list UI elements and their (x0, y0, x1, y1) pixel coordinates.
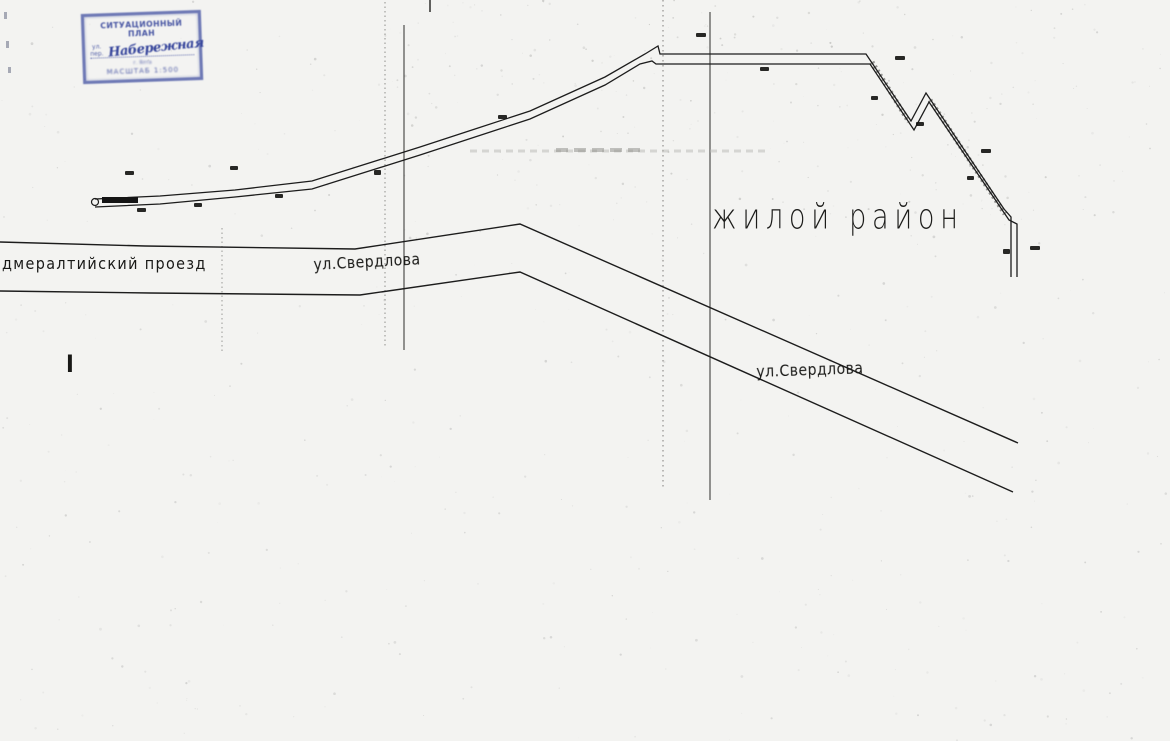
noise-dot (1006, 197, 1009, 200)
noise-dot (737, 432, 739, 434)
noise-dot (444, 508, 445, 509)
noise-dot (1096, 31, 1098, 33)
noise-dot (876, 124, 877, 125)
noise-dot (808, 177, 809, 178)
noise-dot (981, 201, 982, 202)
noise-dot (989, 97, 991, 99)
noise-dot (204, 320, 207, 323)
noise-dot (850, 181, 852, 183)
point-number-mark (1030, 246, 1040, 250)
noise-dot (87, 221, 88, 222)
noise-dot (634, 127, 635, 128)
noise-dot (425, 3, 426, 4)
noise-dot (239, 705, 240, 706)
noise-dot (670, 173, 672, 175)
noise-dot (831, 497, 832, 498)
noise-dot (829, 42, 831, 44)
noise-dot (622, 183, 624, 185)
noise-dot (1036, 118, 1037, 119)
noise-dot (707, 25, 708, 26)
noise-dot (240, 363, 242, 365)
noise-dot (31, 42, 34, 45)
noise-dot (405, 605, 407, 607)
noise-dot (30, 548, 31, 549)
point-number-mark (981, 149, 991, 153)
noise-dot (1035, 80, 1036, 81)
noise-dot (1100, 611, 1102, 613)
noise-dot (919, 601, 921, 603)
noise-dot (936, 350, 937, 351)
noise-dot (536, 184, 537, 185)
noise-dot (1053, 37, 1055, 39)
noise-dot (412, 421, 414, 423)
noise-dot (720, 38, 722, 40)
noise-dot (399, 653, 401, 655)
noise-dot (880, 510, 882, 512)
noise-dot (626, 618, 627, 619)
noise-dot (652, 612, 653, 613)
noise-dot (527, 207, 529, 209)
noise-dot (1031, 490, 1033, 492)
noise-dot (158, 408, 160, 410)
noise-dot (740, 400, 741, 401)
noise-dot (574, 83, 575, 84)
noise-dot (333, 692, 336, 695)
noise-dot (917, 244, 918, 245)
noise-dot (609, 55, 611, 57)
noise-dot (1142, 48, 1144, 50)
noise-dot (672, 17, 674, 19)
noise-dot (935, 182, 936, 183)
noise-dot (903, 82, 904, 83)
noise-dot (790, 102, 792, 104)
noise-dot (397, 86, 399, 88)
point-number-mark (374, 170, 381, 175)
street-label-proyezd: дмералтийский проезд (2, 254, 207, 273)
noise-dot (380, 454, 382, 456)
noise-dot (29, 113, 32, 116)
noise-dot (461, 296, 462, 297)
noise-dot (583, 46, 586, 49)
noise-dot (859, 0, 860, 1)
noise-dot (186, 700, 187, 701)
noise-dot (142, 178, 144, 180)
noise-dot (741, 713, 742, 714)
noise-dot (439, 457, 440, 458)
noise-dot (726, 80, 727, 81)
noise-dot (805, 604, 807, 606)
noise-dot (852, 580, 853, 581)
noise-dot (1031, 10, 1032, 11)
noise-dot (58, 619, 60, 621)
noise-dot (415, 221, 416, 222)
noise-dot (76, 471, 77, 472)
noise-dot (1004, 554, 1006, 556)
noise-dot (677, 237, 678, 238)
point-number-mark (967, 176, 974, 180)
noise-dot (863, 33, 864, 34)
noise-dot (20, 304, 22, 306)
noise-dot (638, 568, 640, 570)
noise-dot (65, 161, 66, 162)
noise-dot (886, 457, 887, 458)
noise-dot (188, 680, 191, 683)
noise-dot (95, 338, 96, 339)
noise-dot (500, 14, 501, 15)
noise-dot (1073, 88, 1074, 89)
noise-dot (454, 75, 455, 76)
noise-dot (780, 48, 782, 50)
noise-dot (620, 653, 622, 655)
noise-dot (796, 50, 798, 52)
noise-dot (667, 571, 668, 572)
noise-dot (904, 14, 905, 15)
scan-noise (2, 0, 1167, 741)
noise-dot (1065, 723, 1067, 725)
noise-dot (121, 665, 123, 667)
noise-dot (629, 331, 632, 334)
noise-dot (390, 465, 392, 467)
noise-dot (974, 121, 976, 123)
noise-dot (990, 62, 992, 64)
noise-dot (820, 631, 822, 633)
noise-dot (15, 318, 17, 320)
noise-dot (1070, 290, 1071, 291)
stamp-title: СИТУАЦИОННЫЙ ПЛАН (86, 18, 197, 40)
noise-dot (455, 492, 456, 493)
noise-dot (149, 687, 151, 689)
noise-dot (5, 575, 7, 577)
noise-dot (111, 657, 113, 659)
noise-dot (1013, 87, 1015, 89)
noise-dot (837, 671, 839, 673)
noise-dot (476, 68, 477, 69)
noise-dot (885, 146, 886, 147)
noise-dot (399, 32, 401, 34)
noise-dot (1082, 689, 1085, 692)
noise-dot (572, 505, 573, 506)
noise-dot (498, 512, 500, 514)
noise-dot (457, 102, 458, 103)
site-plan-drawing (0, 0, 1170, 741)
noise-dot (1072, 8, 1074, 10)
noise-dot (1109, 692, 1111, 694)
noise-dot (31, 105, 33, 107)
noise-dot (140, 328, 142, 330)
noise-dot (299, 305, 301, 307)
noise-dot (984, 719, 986, 721)
noise-dot (57, 131, 60, 134)
noise-dot (3, 216, 4, 217)
noise-dot (1093, 428, 1094, 429)
noise-dot (886, 609, 887, 610)
noise-dot (65, 470, 66, 471)
noise-dot (706, 32, 707, 33)
noise-dot (497, 174, 498, 175)
noise-dot (173, 305, 174, 306)
noise-dot (197, 708, 198, 709)
noise-dot (648, 440, 649, 441)
noise-dot (1084, 561, 1086, 563)
noise-dot (381, 477, 382, 478)
noise-dot (741, 675, 744, 678)
noise-dot (680, 384, 683, 387)
noise-dot (875, 389, 876, 390)
noise-dot (568, 309, 569, 310)
noise-dot (982, 164, 983, 165)
noise-dot (678, 521, 681, 524)
noise-dot (595, 177, 597, 179)
noise-dot (827, 190, 828, 191)
noise-dot (186, 698, 187, 699)
noise-dot (943, 450, 945, 452)
point-number-mark (230, 166, 238, 170)
noise-dot (962, 617, 965, 620)
noise-dot (772, 24, 775, 27)
noise-dot (559, 688, 560, 689)
noise-dot (359, 120, 360, 121)
noise-dot (450, 428, 452, 430)
noise-dot (1011, 467, 1012, 468)
noise-dot (1137, 551, 1139, 553)
noise-dot (967, 559, 969, 561)
noise-dot (497, 94, 499, 96)
noise-dot (415, 466, 417, 468)
noise-dot (926, 671, 928, 673)
noise-dot (190, 474, 192, 476)
noise-dot (1137, 387, 1139, 389)
noise-dot (574, 84, 577, 87)
noise-dot (1003, 714, 1005, 716)
noise-dot (542, 603, 544, 605)
point-number-mark (895, 56, 905, 60)
noise-dot (386, 589, 387, 590)
noise-dot (1027, 91, 1029, 93)
noise-dot (704, 25, 706, 27)
noise-dot (229, 385, 231, 387)
noise-dot (392, 81, 393, 82)
noise-dot (272, 625, 273, 626)
noise-dot (457, 35, 459, 37)
noise-dot (1129, 136, 1130, 137)
noise-dot (1033, 398, 1036, 401)
noise-dot (501, 75, 503, 77)
noise-dot (65, 514, 67, 516)
noise-dot (1122, 171, 1123, 172)
noise-dot (817, 105, 818, 106)
noise-dot (32, 187, 33, 188)
noise-dot (561, 499, 562, 500)
noise-dot (481, 64, 483, 66)
noise-dot (509, 271, 510, 272)
noise-dot (304, 439, 306, 441)
stamp-street-prefix: ул. пер. (90, 43, 104, 57)
noise-dot (144, 671, 146, 673)
noise-dot (565, 273, 567, 275)
noise-dot (882, 282, 885, 285)
noise-dot (977, 316, 980, 319)
noise-dot (1157, 456, 1158, 457)
noise-dot (839, 68, 840, 69)
noise-dot (279, 36, 281, 38)
noise-dot (417, 59, 419, 61)
scan-edge-artifact (8, 67, 11, 73)
noise-dot (351, 398, 354, 401)
noise-dot (742, 110, 744, 112)
noise-dot (1160, 543, 1162, 545)
noise-dot (922, 174, 924, 176)
noise-dot (57, 167, 58, 168)
noise-dot (1084, 196, 1086, 198)
noise-dot (411, 124, 414, 127)
noise-dot (562, 135, 564, 137)
noise-dot (256, 69, 257, 70)
noise-dot (970, 70, 971, 71)
noise-dot (858, 140, 859, 141)
noise-dot (31, 669, 33, 671)
noise-dot (1082, 279, 1084, 281)
noise-dot (668, 297, 670, 299)
noise-dot (601, 62, 603, 64)
noise-dot (1006, 518, 1008, 520)
noise-dot (475, 265, 476, 266)
noise-dot (463, 512, 465, 514)
noise-dot (786, 141, 788, 143)
noise-dot (706, 24, 707, 25)
noise-dot (1076, 642, 1078, 644)
noise-dot (550, 205, 552, 207)
noise-dot (703, 253, 704, 254)
noise-dot (738, 558, 739, 559)
noise-dot (439, 144, 440, 145)
noise-dot (34, 310, 36, 312)
noise-dot (2, 100, 3, 101)
noise-dot (200, 601, 202, 603)
noise-dot (460, 415, 461, 416)
noise-dot (314, 210, 316, 212)
noise-dot (968, 139, 970, 141)
noise-dot (396, 79, 398, 81)
noise-dot (936, 189, 937, 190)
noise-dot (108, 444, 110, 446)
noise-dot (1034, 501, 1035, 502)
point-number-mark (498, 115, 507, 119)
noise-dot (745, 264, 748, 267)
noise-dot (314, 58, 317, 61)
noise-dot (952, 36, 953, 37)
noise-dot (195, 708, 196, 709)
noise-dot (847, 674, 850, 677)
noise-dot (549, 39, 550, 40)
noise-dot (1023, 342, 1025, 344)
noise-dot (1106, 716, 1107, 717)
noise-dot (714, 112, 715, 113)
noise-dot (1029, 192, 1030, 193)
noise-dot (1038, 242, 1040, 244)
noise-dot (326, 484, 328, 486)
noise-dot (1076, 86, 1077, 87)
noise-dot (298, 563, 299, 564)
noise-dot (284, 133, 286, 135)
noise-dot (694, 548, 696, 550)
noise-dot (261, 234, 264, 237)
noise-dot (234, 213, 236, 215)
noise-dot (633, 80, 635, 82)
noise-dot (1130, 737, 1132, 739)
noise-dot (698, 121, 699, 122)
noise-dot (990, 724, 993, 727)
noise-dot (621, 197, 622, 198)
noise-dot (772, 319, 775, 322)
noise-dot (408, 44, 410, 46)
noise-dot (1136, 648, 1138, 650)
noise-dot (407, 113, 410, 116)
noise-dot (416, 237, 417, 238)
noise-dot (511, 39, 512, 40)
noise-dot (210, 456, 212, 458)
noise-dot (617, 356, 619, 358)
noise-dot (1004, 175, 1006, 177)
noise-dot (831, 575, 832, 576)
noise-dot (803, 96, 804, 97)
noise-dot (917, 714, 919, 716)
noise-dot (529, 159, 532, 162)
noise-dot (64, 481, 65, 482)
noise-dot (157, 703, 158, 704)
point-number-mark (275, 194, 283, 198)
noise-dot (453, 22, 454, 23)
noise-dot (1079, 360, 1082, 363)
noise-dot (217, 522, 218, 523)
noise-dot (1099, 164, 1100, 165)
noise-dot (893, 134, 894, 135)
noise-dot (1046, 440, 1048, 442)
noise-dot (911, 157, 912, 158)
noise-dot (1034, 675, 1036, 677)
noise-dot (89, 541, 91, 543)
noise-dot (449, 65, 451, 67)
noise-dot (996, 521, 998, 523)
noise-dot (1033, 210, 1034, 211)
noise-dot (539, 74, 540, 75)
noise-dot (481, 10, 483, 12)
noise-dot (1087, 108, 1088, 109)
noise-dot (168, 179, 169, 180)
noise-dot (542, 0, 544, 2)
noise-dot (218, 502, 221, 505)
noise-dot (833, 634, 834, 635)
noise-dot (157, 148, 159, 150)
noise-dot (154, 419, 155, 420)
noise-dot (803, 142, 804, 143)
noise-dot (981, 208, 982, 209)
noise-dot (388, 643, 390, 645)
noise-dot (778, 161, 780, 163)
noise-dot (1092, 312, 1094, 314)
noise-dot (951, 154, 952, 155)
noise-dot (428, 155, 430, 157)
noise-dot (223, 625, 224, 626)
noise-dot (184, 733, 185, 734)
noise-dot (426, 232, 429, 235)
noise-dot (773, 83, 775, 85)
noise-dot (44, 126, 45, 127)
noise-dot (390, 29, 391, 30)
noise-dot (848, 147, 849, 148)
noise-dot (752, 642, 753, 643)
point-number-mark (916, 122, 924, 126)
noise-dot (34, 727, 36, 729)
